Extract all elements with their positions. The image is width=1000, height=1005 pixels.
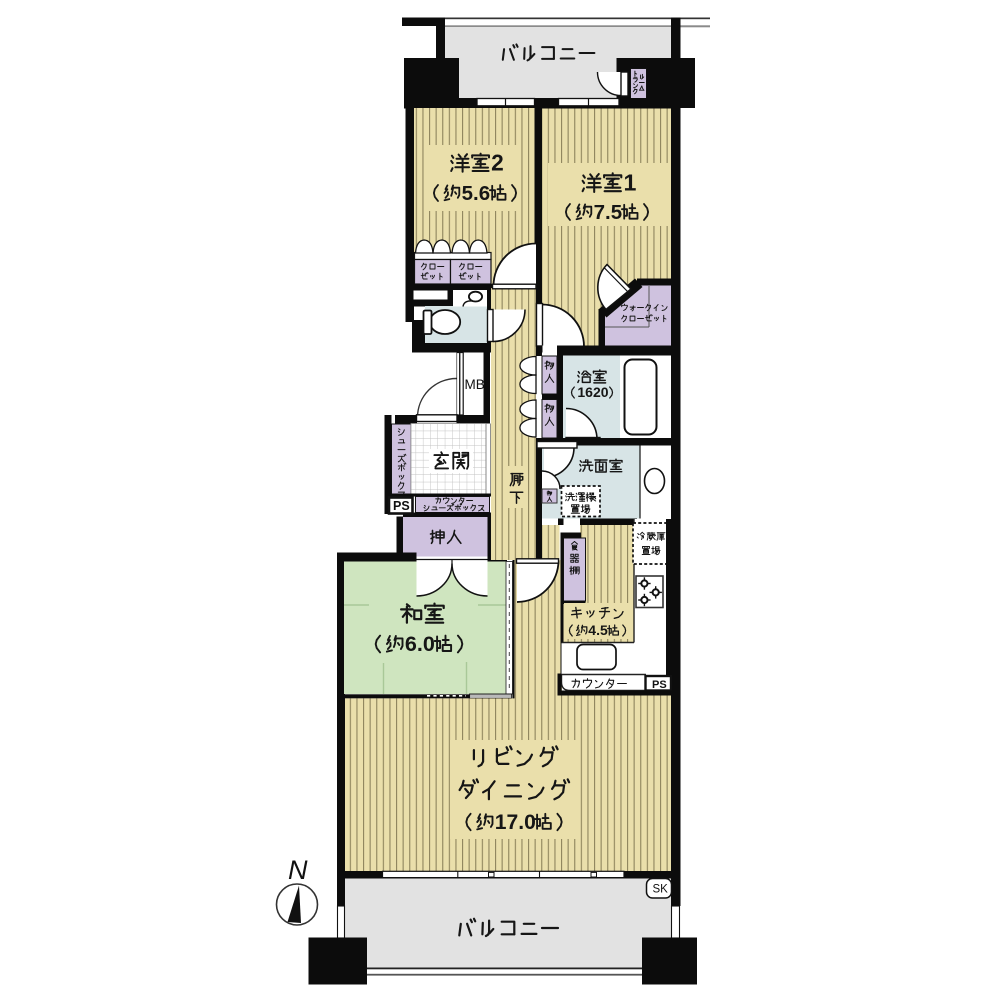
svg-text:2: 2 bbox=[491, 150, 504, 176]
svg-text:1: 1 bbox=[624, 170, 637, 196]
svg-text:5.6: 5.6 bbox=[462, 182, 491, 205]
svg-text:7.5: 7.5 bbox=[594, 201, 623, 224]
svg-text:1620: 1620 bbox=[577, 384, 608, 400]
svg-text:N: N bbox=[288, 855, 308, 885]
svg-text:17.0: 17.0 bbox=[495, 811, 536, 834]
svg-text:SK: SK bbox=[653, 884, 669, 896]
svg-text:MB: MB bbox=[465, 377, 485, 392]
svg-text:6.0: 6.0 bbox=[405, 631, 435, 656]
svg-text:PS: PS bbox=[393, 499, 410, 513]
svg-text:PS: PS bbox=[652, 679, 667, 691]
svg-text:4.5: 4.5 bbox=[588, 622, 608, 638]
